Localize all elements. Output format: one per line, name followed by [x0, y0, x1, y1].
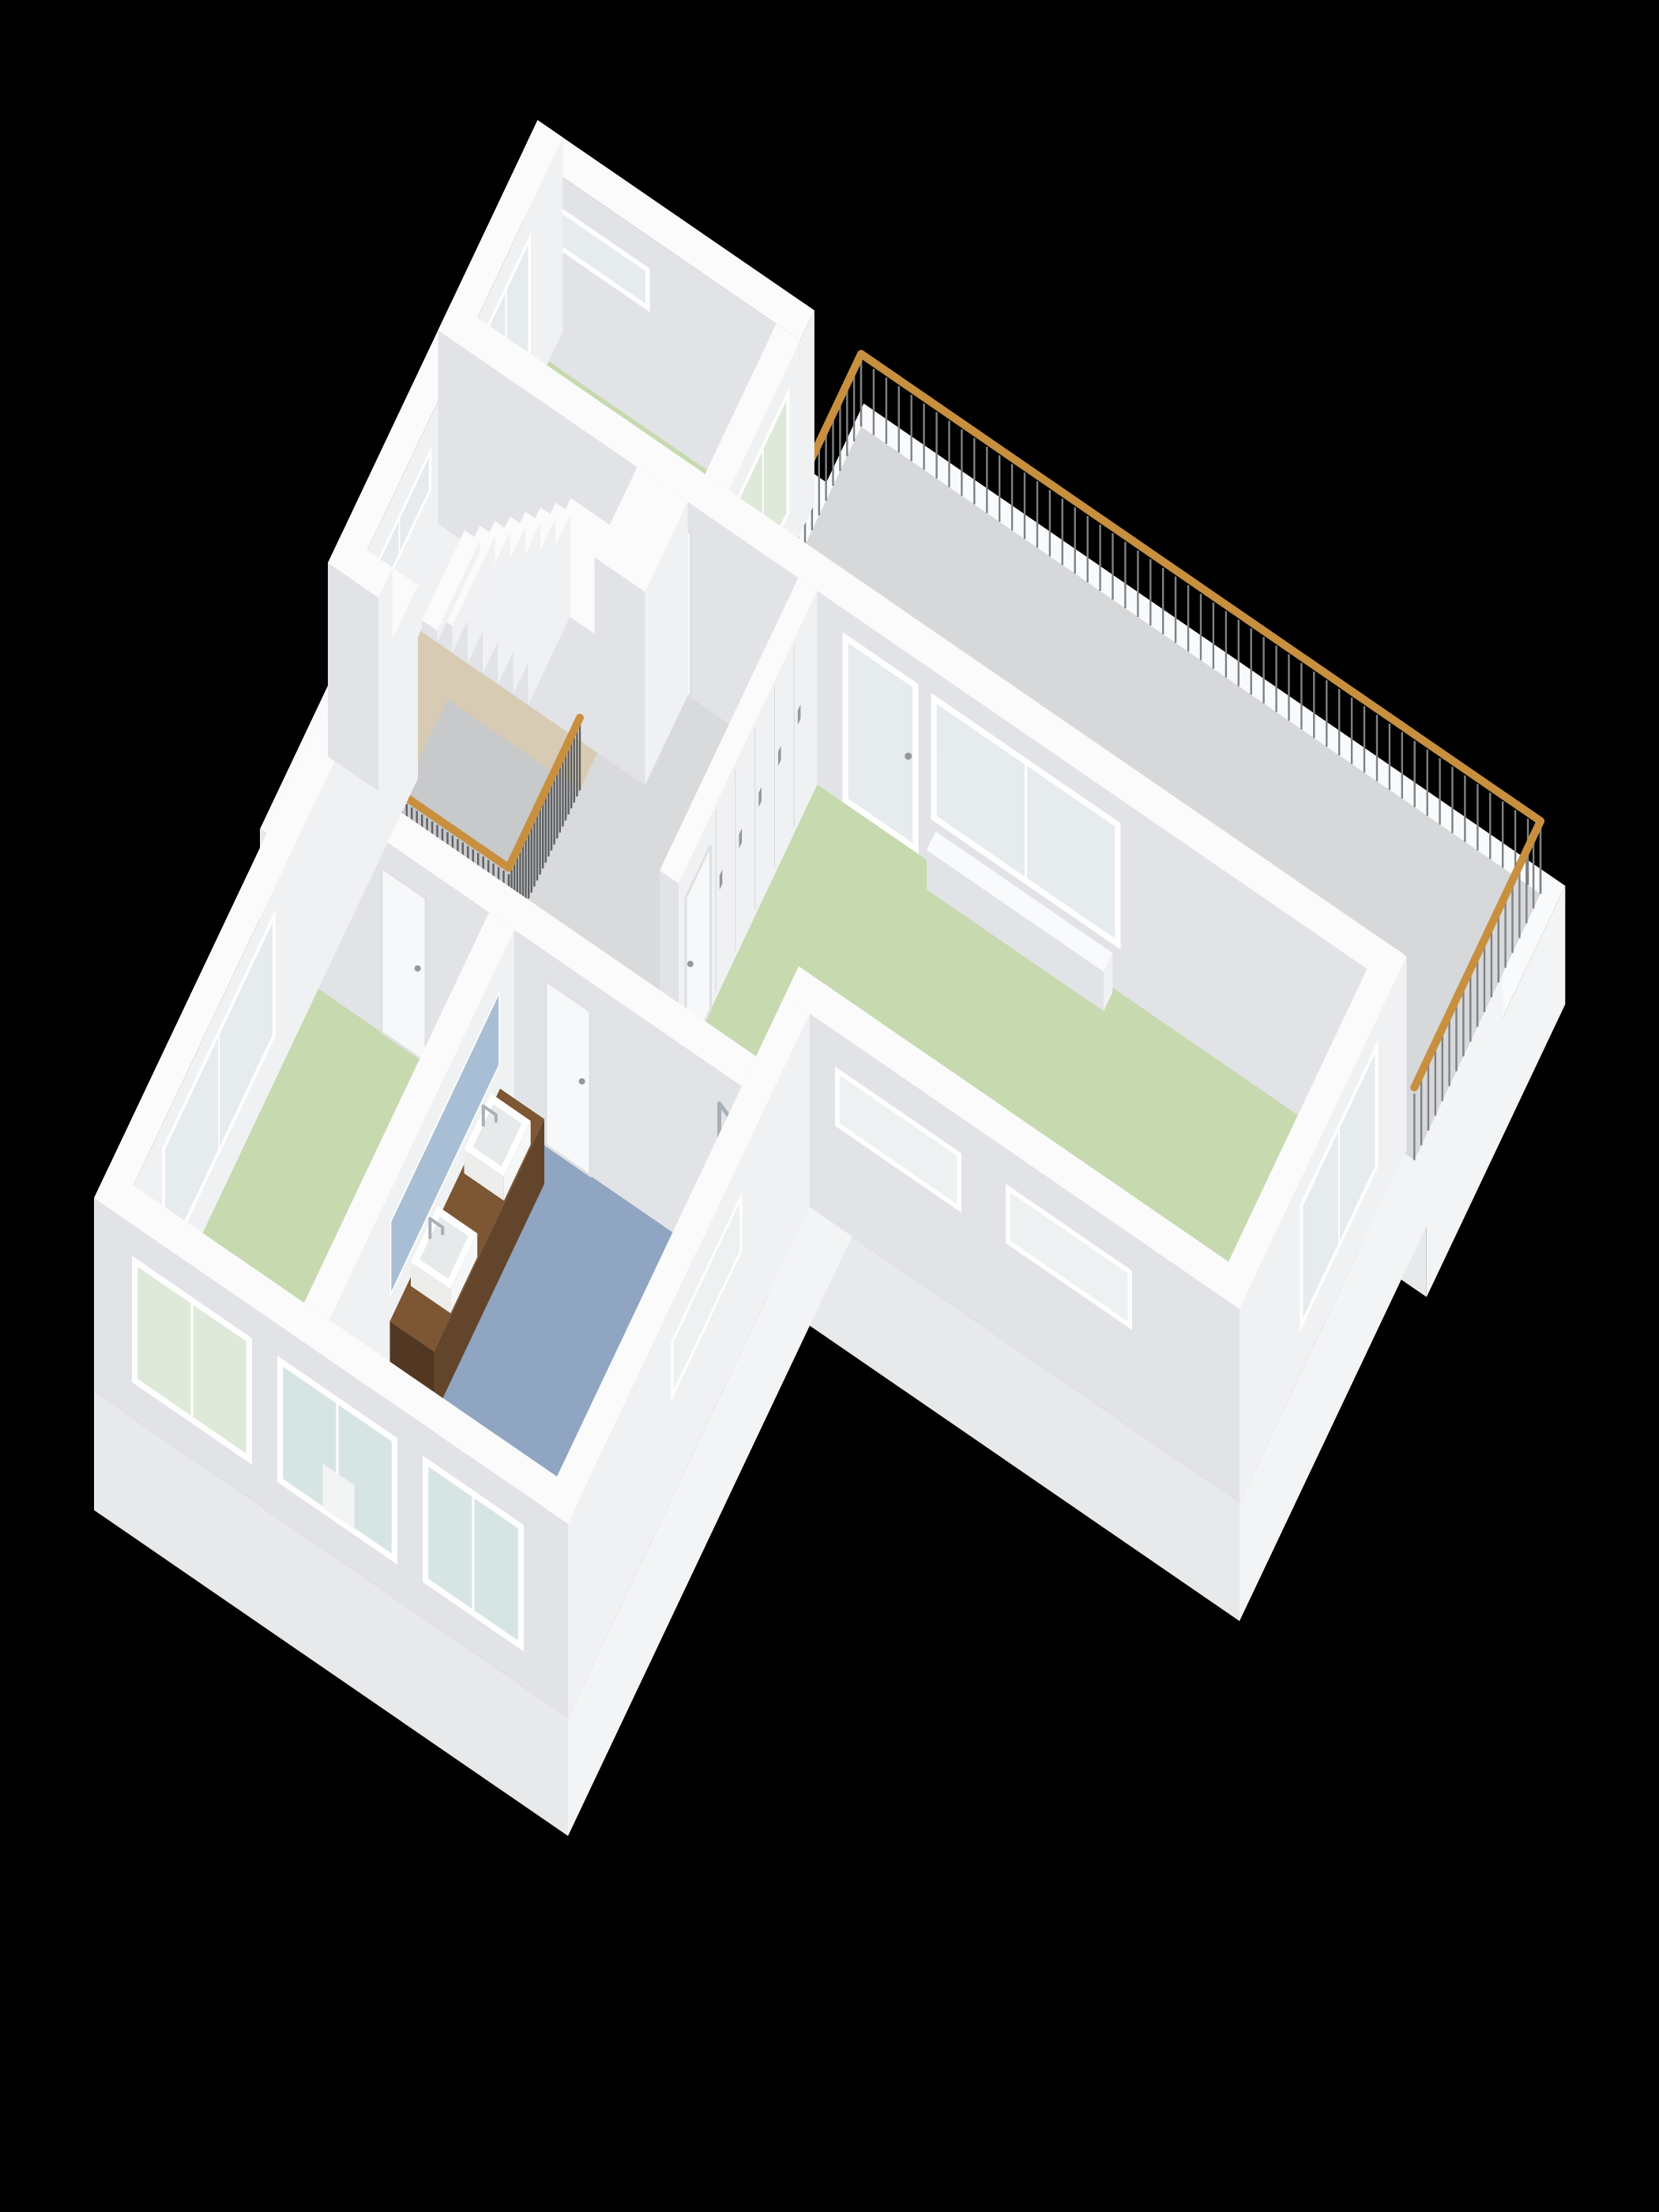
closet-panel-joint-4: [735, 768, 736, 951]
west-step-wall: [328, 533, 393, 792]
closet-panel-joint-5: [716, 810, 717, 993]
closet-panel-joint-3: [754, 727, 755, 910]
bathroom-door: [546, 981, 590, 1176]
closet-panel-joint-2: [774, 686, 775, 869]
small-bedroom-door: [382, 868, 426, 1063]
floorplan-3d-render: [0, 0, 1659, 2212]
closet-panel-joint-1: [794, 645, 795, 828]
